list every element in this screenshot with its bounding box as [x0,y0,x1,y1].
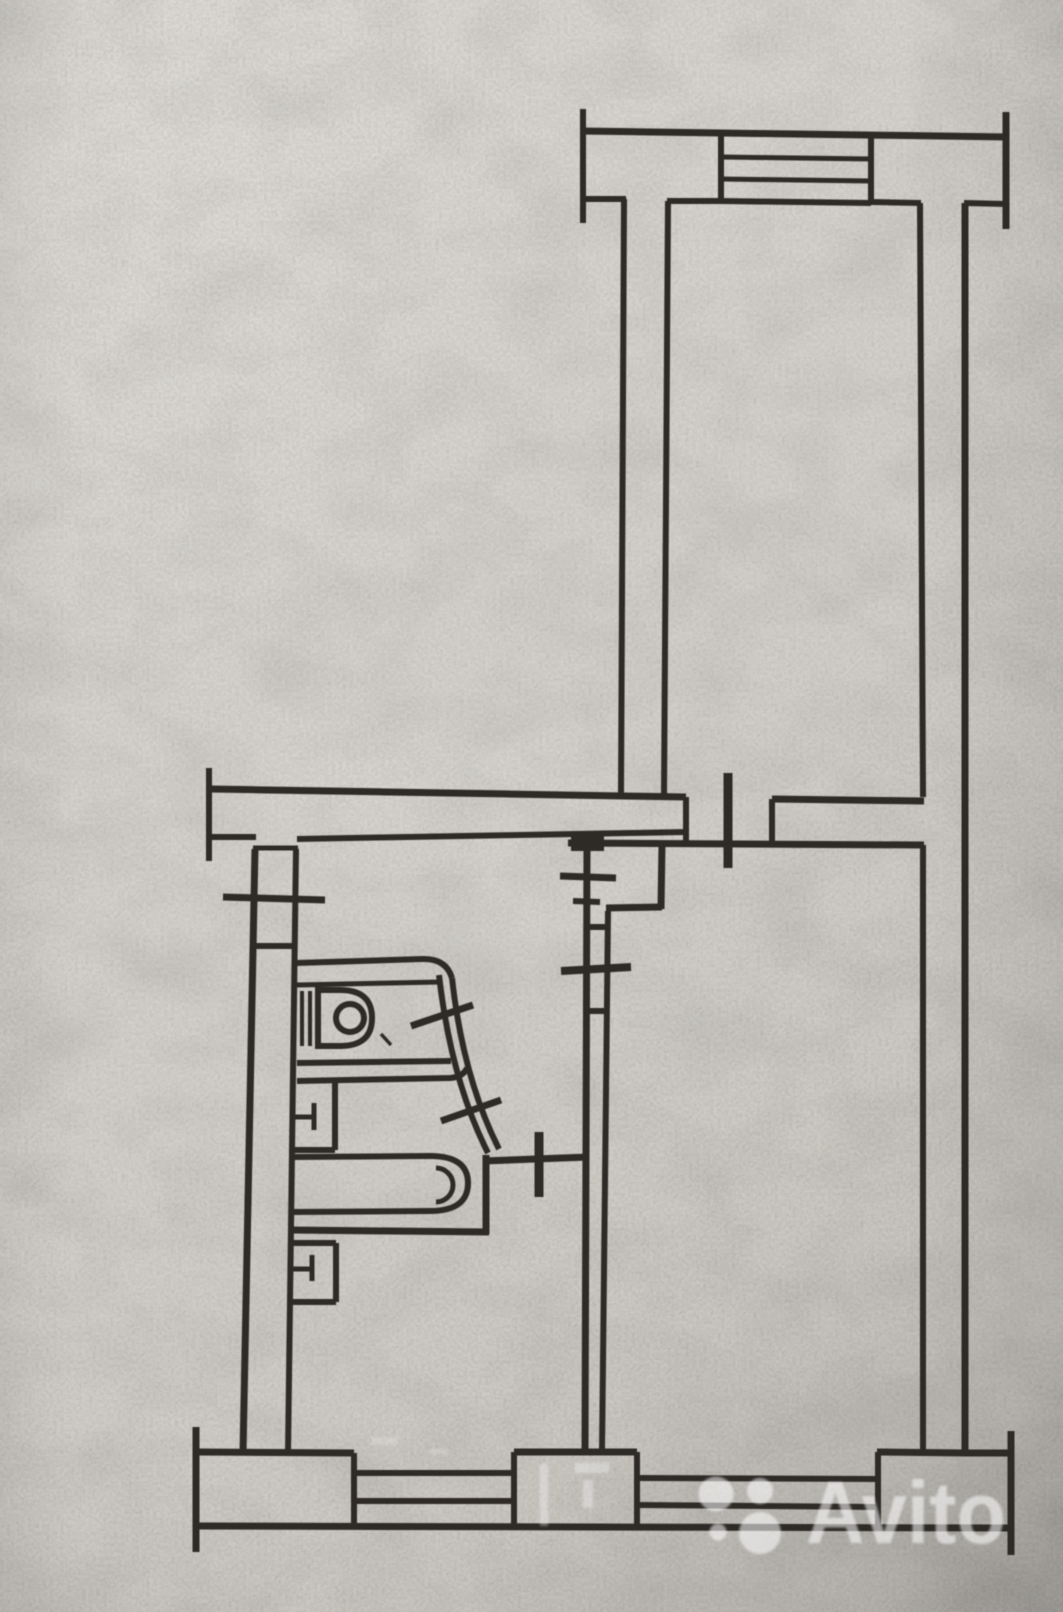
svg-text:Avito: Avito [806,1463,1006,1562]
